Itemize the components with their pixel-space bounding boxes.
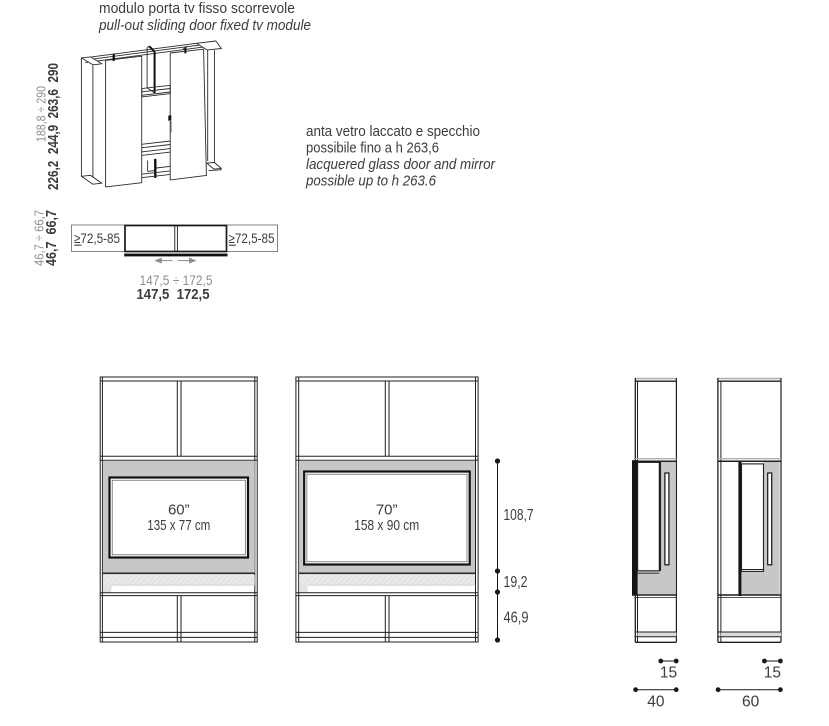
svg-text:≥72,5-85: ≥72,5-85 [74, 231, 120, 246]
svg-text:135 x 77 cm: 135 x 77 cm [147, 517, 210, 534]
svg-text:46,9: 46,9 [504, 609, 529, 626]
svg-text:15: 15 [764, 665, 781, 682]
svg-text:147,5 ÷ 172,5: 147,5 ÷ 172,5 [140, 272, 213, 288]
svg-text:108,7: 108,7 [504, 507, 534, 524]
svg-text:40: 40 [647, 693, 665, 710]
svg-text:modulo porta tv fisso scorrevo: modulo porta tv fisso scorrevole [99, 0, 295, 17]
svg-text:≥72,5-85: ≥72,5-85 [229, 231, 275, 246]
svg-text:possible up to h 263.6: possible up to h 263.6 [305, 173, 436, 190]
svg-text:15: 15 [660, 665, 677, 682]
svg-text:lacquered glass door and mirro: lacquered glass door and mirror [306, 156, 496, 173]
svg-text:possibile fino a h 263,6: possibile fino a h 263,6 [306, 140, 439, 157]
svg-text:60: 60 [742, 693, 760, 710]
svg-text:147,5 172,5: 147,5 172,5 [137, 287, 210, 303]
svg-text:19,2: 19,2 [504, 574, 528, 591]
svg-text:188,8 ÷ 290: 188,8 ÷ 290 [34, 86, 49, 142]
svg-text:46,7 ÷ 66,7: 46,7 ÷ 66,7 [32, 210, 47, 266]
svg-text:158 x 90 cm: 158 x 90 cm [354, 517, 419, 534]
svg-text:anta vetro laccato e specchio: anta vetro laccato e specchio [306, 123, 480, 140]
svg-text:pull-out sliding door fixed tv: pull-out sliding door fixed tv module [98, 17, 311, 34]
